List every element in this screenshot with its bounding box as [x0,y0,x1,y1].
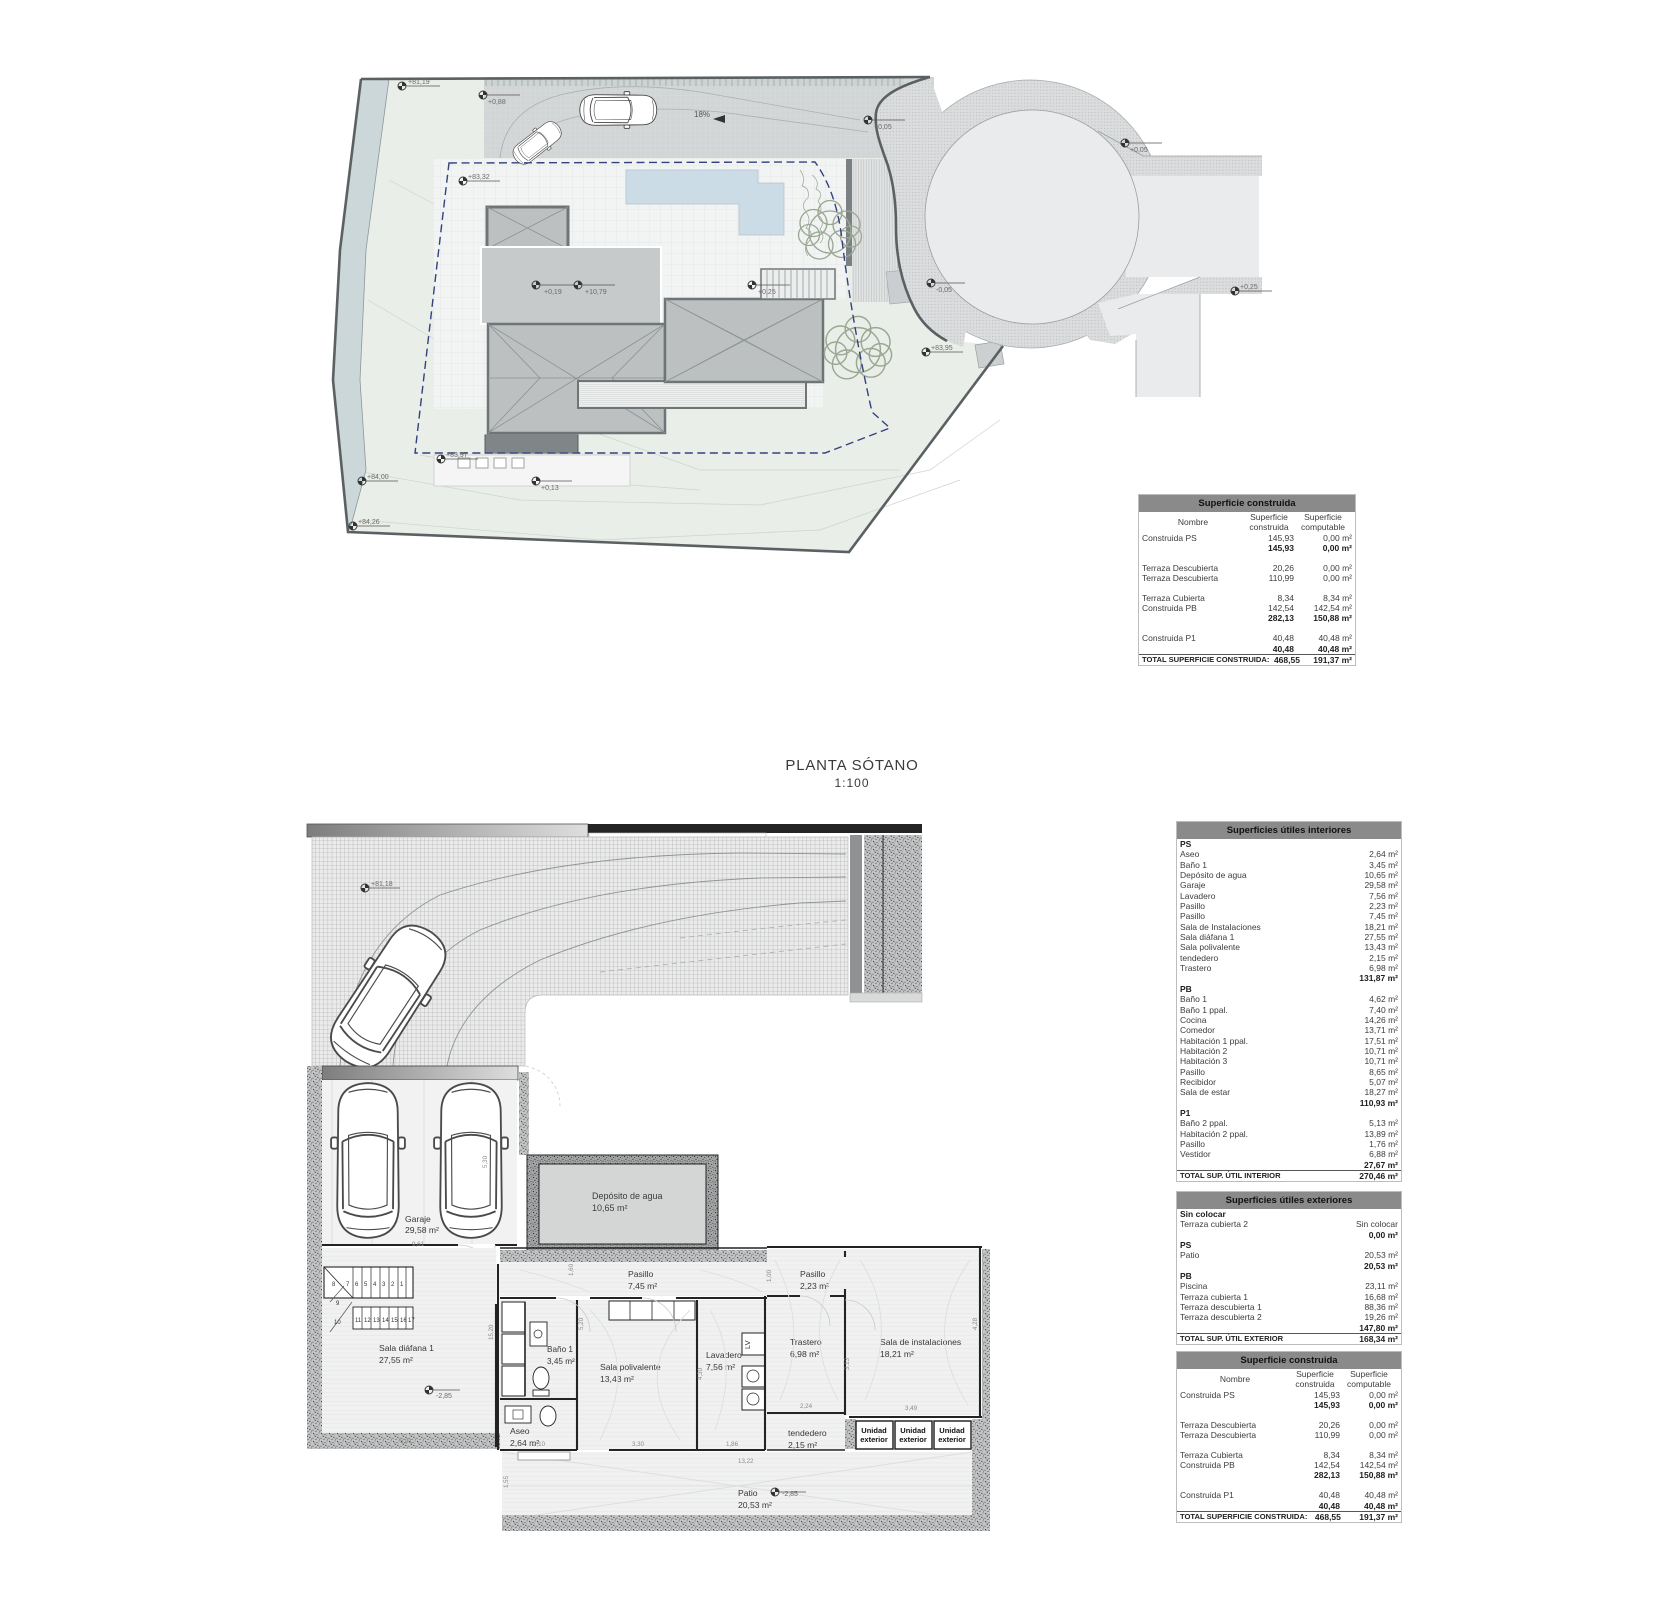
svg-text:+10,79: +10,79 [585,289,607,296]
svg-text:27,55 m²: 27,55 m² [379,1355,413,1365]
svg-text:+0,88: +0,88 [488,99,506,106]
svg-text:+0,13: +0,13 [541,485,559,492]
svg-text:2,24: 2,24 [800,1403,813,1410]
svg-text:3,45 m²: 3,45 m² [547,1357,575,1366]
svg-text:exterior: exterior [899,1435,927,1444]
svg-text:1,55: 1,55 [503,1475,510,1488]
svg-text:2,10: 2,10 [533,1441,546,1448]
svg-text:13: 13 [373,1318,380,1324]
svg-text:6,98 m²: 6,98 m² [790,1349,819,1359]
svg-text:9,61: 9,61 [412,1241,425,1248]
svg-text:18%: 18% [694,110,710,119]
svg-text:Patio: Patio [738,1488,758,1498]
svg-text:Pasillo: Pasillo [800,1269,826,1279]
svg-text:Unidad: Unidad [939,1426,965,1435]
svg-text:4,30: 4,30 [697,1367,704,1380]
svg-text:13,43 m²: 13,43 m² [600,1374,634,1384]
svg-text:LV: LV [743,1340,752,1349]
svg-text:+0,19: +0,19 [544,289,562,296]
svg-text:-2,85: -2,85 [436,1393,452,1400]
svg-text:7,56 m²: 7,56 m² [706,1362,735,1372]
svg-text:2,23 m²: 2,23 m² [800,1281,829,1291]
svg-text:15,20: 15,20 [488,1324,495,1340]
svg-text:+81,19: +81,19 [408,79,430,86]
svg-text:5,01: 5,01 [400,1438,413,1445]
svg-text:18,21 m²: 18,21 m² [880,1349,914,1359]
svg-text:-2,85: -2,85 [782,1491,798,1498]
svg-text:Sala diáfana 1: Sala diáfana 1 [379,1343,434,1353]
svg-text:+0,25: +0,25 [1240,284,1258,291]
svg-text:2,15 m²: 2,15 m² [788,1440,817,1450]
svg-text:+83,32: +83,32 [468,174,490,181]
svg-text:+0,25: +0,25 [758,289,776,296]
svg-text:13,22: 13,22 [738,1458,754,1465]
svg-text:Unidad: Unidad [900,1426,926,1435]
svg-text:1,00: 1,00 [766,1269,773,1282]
svg-text:29,58 m²: 29,58 m² [405,1225,439,1235]
svg-text:Unidad: Unidad [861,1426,887,1435]
svg-text:exterior: exterior [938,1435,966,1444]
svg-text:20,53 m²: 20,53 m² [738,1500,772,1510]
svg-text:+84,26: +84,26 [358,519,380,526]
svg-text:14: 14 [382,1318,389,1324]
svg-text:-0,05: -0,05 [936,287,952,294]
svg-text:Sala de instalaciones: Sala de instalaciones [880,1337,961,1347]
svg-text:Depósito de agua: Depósito de agua [592,1191,663,1201]
svg-text:5,30: 5,30 [482,1155,489,1168]
svg-text:Baño 1: Baño 1 [547,1345,573,1354]
svg-text:17: 17 [408,1318,415,1324]
svg-text:1,60: 1,60 [568,1263,575,1276]
svg-text:+83,95: +83,95 [931,345,953,352]
svg-text:11: 11 [355,1318,362,1324]
svg-text:Trastero: Trastero [790,1337,822,1347]
svg-text:10,65 m²: 10,65 m² [592,1203,628,1213]
svg-text:Lavadero: Lavadero [706,1350,742,1360]
svg-text:1,86: 1,86 [726,1441,739,1448]
svg-text:+0,05: +0,05 [1130,147,1148,154]
svg-text:+0,05: +0,05 [874,124,892,131]
svg-text:exterior: exterior [860,1435,888,1444]
svg-text:+84,00: +84,00 [367,474,389,481]
svg-text:3,30: 3,30 [632,1441,645,1448]
svg-text:12: 12 [364,1318,371,1324]
svg-text:+81,18: +81,18 [371,881,393,888]
svg-text:15: 15 [391,1318,398,1324]
svg-text:Garaje: Garaje [405,1214,431,1224]
svg-text:tendedero: tendedero [788,1428,827,1438]
svg-text:+83,97: +83,97 [446,452,468,459]
svg-text:Sala polivalente: Sala polivalente [600,1362,661,1372]
svg-text:Pasillo: Pasillo [628,1269,654,1279]
svg-text:Aseo: Aseo [510,1426,530,1436]
svg-text:5,20: 5,20 [578,1317,585,1330]
svg-text:4,28: 4,28 [972,1317,979,1330]
svg-text:7,45 m²: 7,45 m² [628,1281,657,1291]
svg-text:3,13: 3,13 [844,1357,851,1370]
svg-text:16: 16 [400,1318,407,1324]
svg-text:3,49: 3,49 [905,1405,918,1412]
